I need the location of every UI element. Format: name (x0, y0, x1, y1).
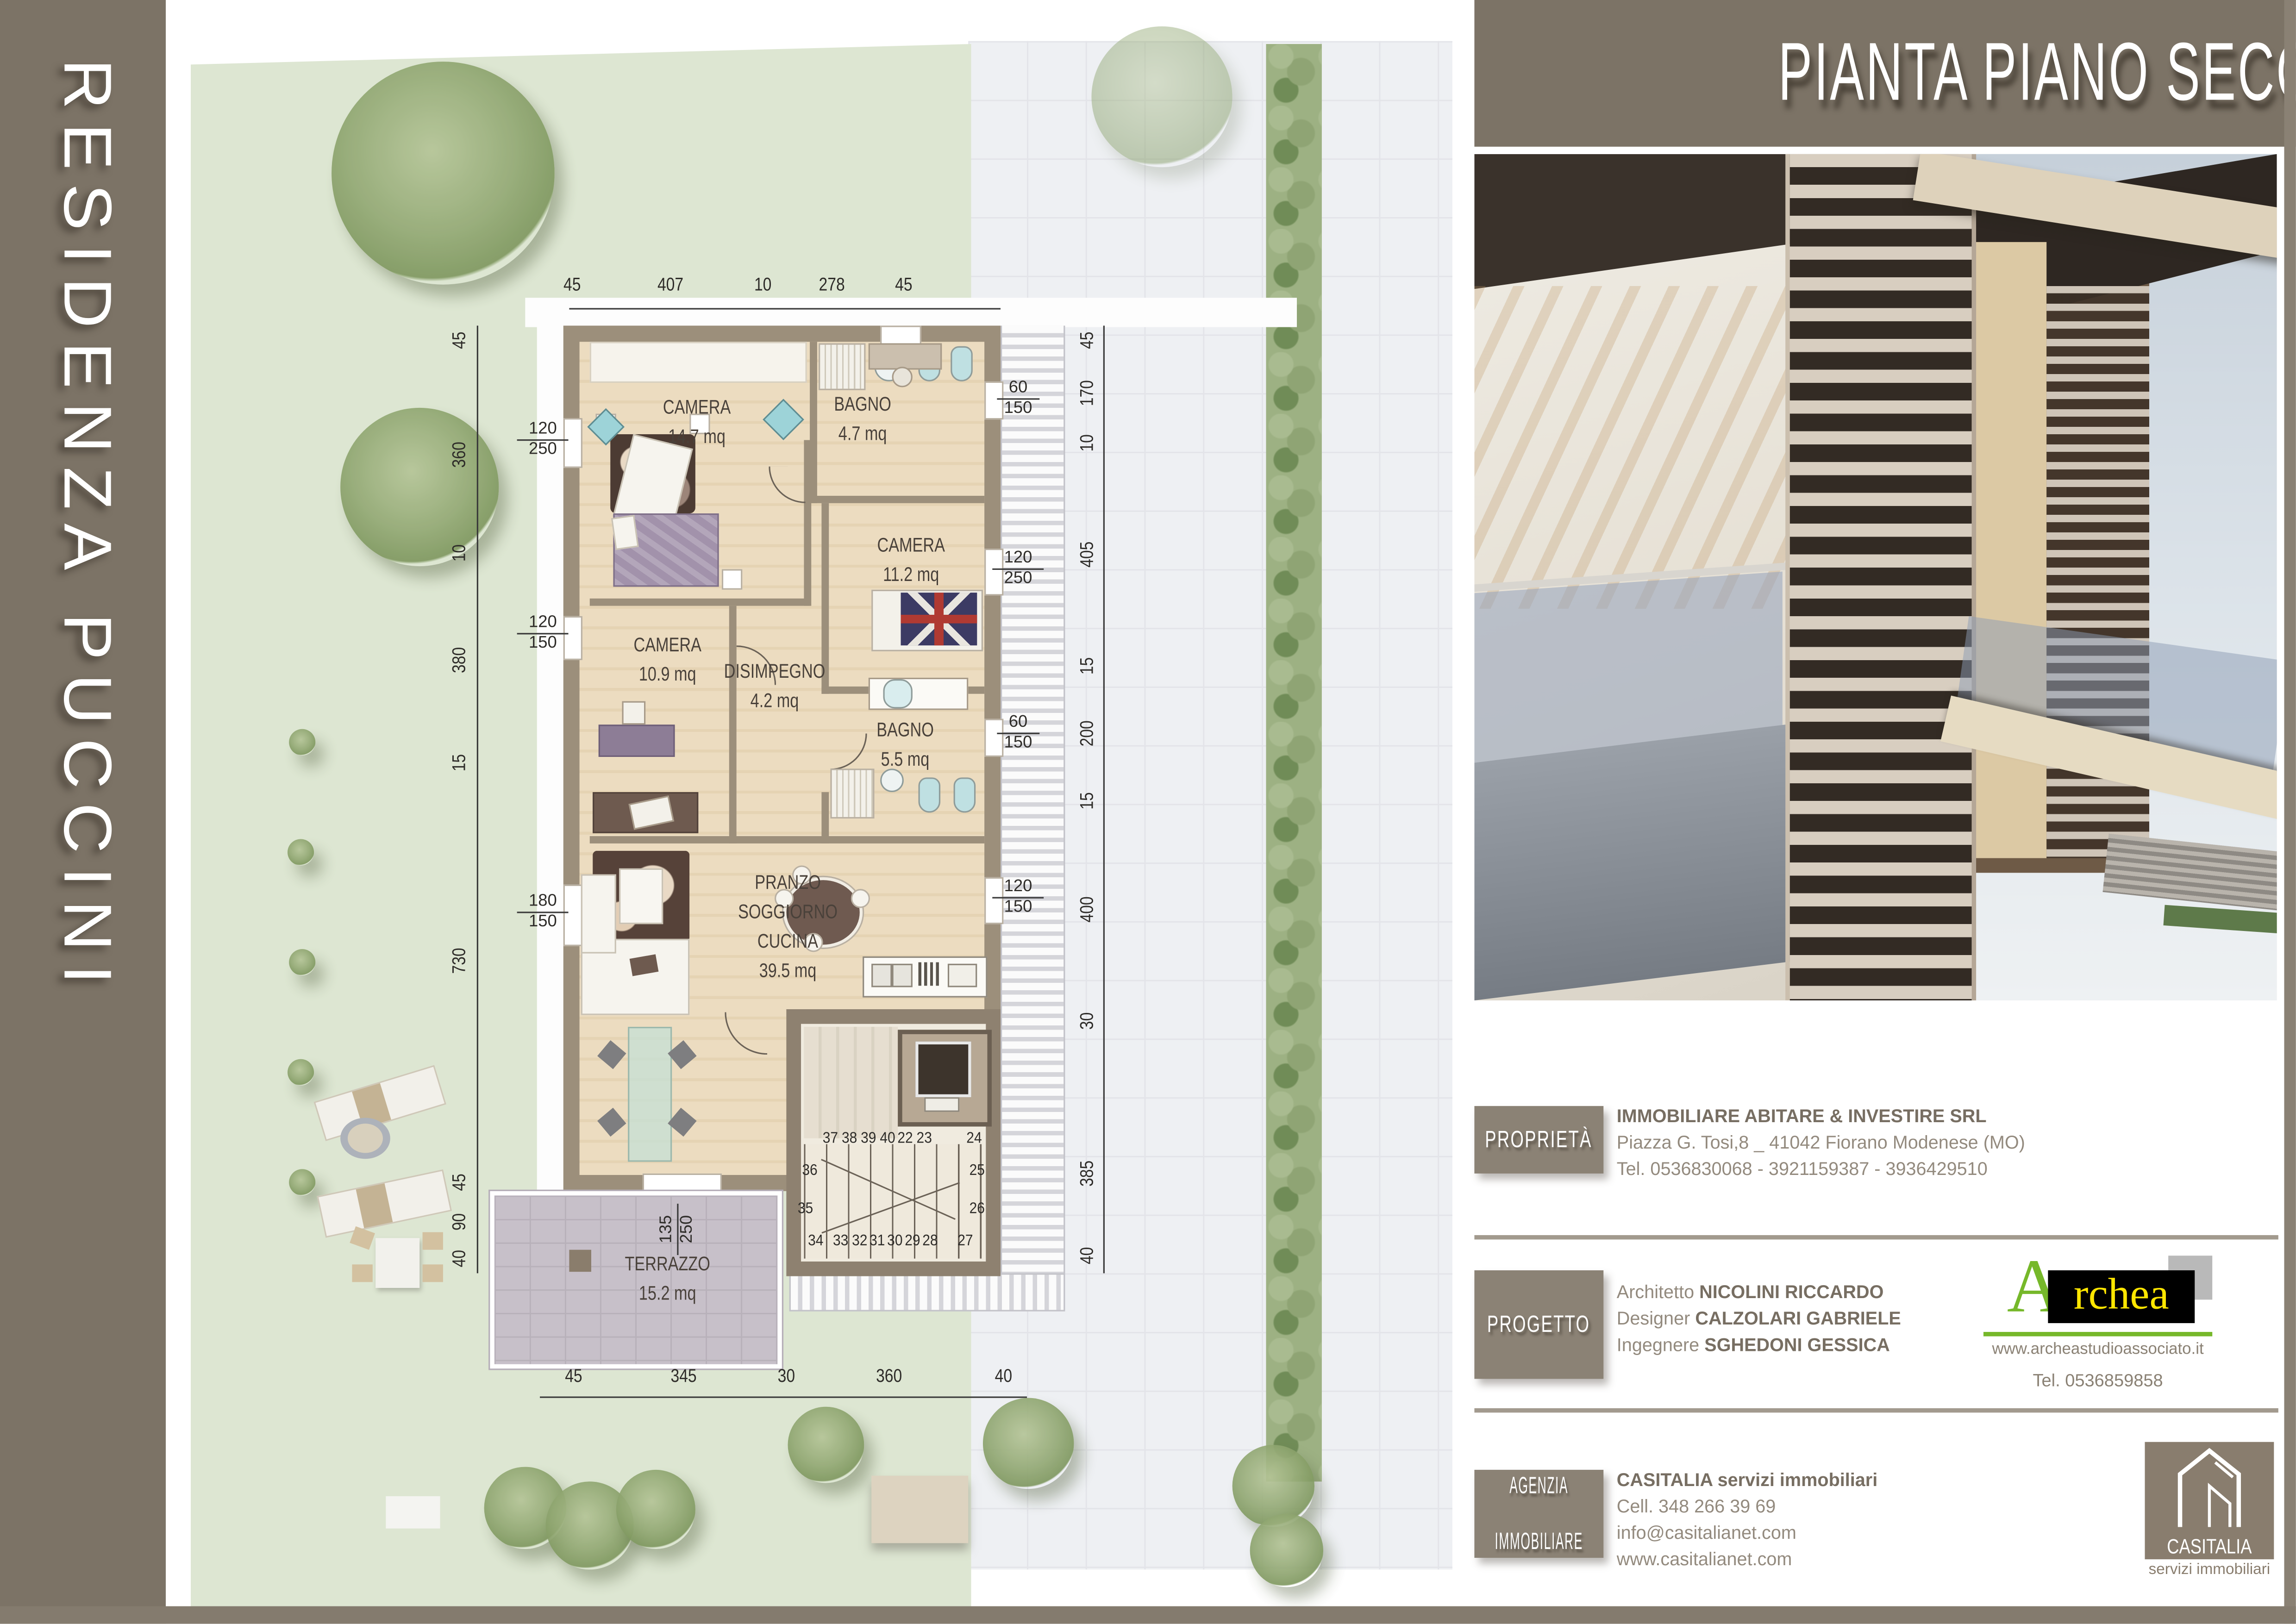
wall-cam1-bottom (590, 599, 810, 606)
progetto-label-box: PROGETTO (1474, 1270, 1603, 1379)
tree-large (332, 62, 555, 285)
glass-table (628, 1027, 672, 1162)
bush-3 (289, 949, 315, 975)
label-camera2: CAMERA10.9 mq (633, 631, 701, 689)
proprieta-company: IMMOBILIARE ABITARE & INVESTIRE SRL (1617, 1106, 1987, 1126)
dim-left-9: 40 (449, 1250, 469, 1267)
garden-pad-white (386, 1496, 440, 1529)
agenzia-text: CASITALIA servizi immobiliari Cell. 348 … (1617, 1467, 1877, 1573)
label-bagno2: BAGNO5.5 mq (876, 716, 934, 775)
chair-camera3 (892, 367, 913, 387)
archea-underline (1983, 1332, 2212, 1337)
dim-bot-1: 45 (565, 1366, 582, 1386)
stair-num: 32 (852, 1232, 867, 1250)
garden-pad-beige (871, 1476, 968, 1543)
terrace-planter (569, 1250, 591, 1272)
wall-bath1-bottom (810, 496, 984, 503)
stair-num: 34 (808, 1232, 823, 1250)
agenzia-label-box: AGENZIAIMMOBILIARE (1474, 1470, 1603, 1558)
wc-bath2 (954, 777, 976, 812)
progetto-name-3: SGHEDONI GESSICA (1704, 1335, 1890, 1355)
dim-bot-3: 30 (778, 1366, 795, 1386)
render-photo (1474, 154, 2277, 1000)
label-camera1: CAMERA14.7 mq (663, 393, 731, 452)
dimline-top (569, 308, 1001, 309)
dimline-left (477, 325, 478, 1273)
dim-right-4: 405 (1077, 542, 1097, 568)
casitalia-logo-subtitle: servizi immobiliari (2139, 1561, 2280, 1578)
wc-bath1 (951, 346, 973, 381)
opening-terrace: 135250 (658, 1204, 698, 1255)
stair-num: 39 (861, 1130, 876, 1147)
opening-left-2: 120150 (517, 614, 569, 654)
bush-4 (288, 1059, 314, 1086)
render-louver-center (1785, 154, 1976, 1000)
tree-faint (1091, 26, 1232, 167)
walkway-louvers-right (1001, 325, 1065, 1273)
label-terrazzo: TERRAZZO15.2 mq (625, 1250, 710, 1309)
elevator-cab (915, 1042, 971, 1097)
stair-landing (804, 1027, 898, 1138)
dim-left-6: 730 (449, 948, 469, 974)
wall-bedrooms-bottom (590, 836, 984, 843)
stair-num: 27 (957, 1232, 973, 1250)
opening-right-3: 60150 (997, 714, 1039, 754)
opening-left-3: 180150 (517, 893, 569, 932)
poster-page: RESIDENZA PUCCINI (0, 0, 2296, 1624)
dim-left-7: 45 (449, 1174, 469, 1191)
tree-small-2 (983, 1398, 1074, 1489)
opening-right-1: 60150 (997, 379, 1039, 419)
nightstand-camera2 (722, 569, 742, 589)
picnic-bench-3 (423, 1232, 443, 1250)
stair-num: 40 (880, 1130, 895, 1147)
kitchen-oven (948, 964, 977, 987)
bush-5 (289, 1169, 315, 1195)
chair-camera2 (622, 701, 645, 725)
garden-round-table-top (348, 1124, 383, 1153)
divider-1 (1474, 1235, 2278, 1240)
hedge-bush-1 (1232, 1445, 1314, 1527)
stair-num: 28 (922, 1232, 938, 1250)
window-top-bath (880, 325, 921, 344)
roof-eave-left (537, 325, 566, 1305)
dim-right-5: 15 (1077, 657, 1097, 675)
archea-phone: Tel. 0536859858 (1966, 1370, 2230, 1390)
desk-camera3 (869, 343, 942, 369)
kitchen-sink-1 (871, 964, 892, 987)
dim-left-2: 360 (449, 442, 469, 468)
dining-chair-2 (851, 889, 870, 908)
opening-right-2: 120250 (992, 550, 1044, 589)
pillow-camera2 (611, 515, 639, 550)
dim-left-1: 45 (449, 331, 469, 349)
dim-right-6: 200 (1077, 720, 1097, 746)
tree-medium (340, 408, 499, 566)
dim-bot-4: 360 (876, 1366, 902, 1386)
bush-cluster-3 (616, 1470, 695, 1549)
label-bagno1: BAGNO4.7 mq (834, 390, 891, 449)
residence-title: RESIDENZA PUCCINI (29, 59, 146, 1584)
stair-num: 33 (833, 1232, 848, 1250)
progetto-name-1: NICOLINI RICCARDO (1699, 1282, 1883, 1302)
render-inner-wall (1966, 242, 2046, 858)
stair-num: 29 (905, 1232, 920, 1250)
dim-top-4: 278 (819, 275, 845, 295)
proprieta-address: Piazza G. Tosi,8 _ 41042 Fiorano Modenes… (1617, 1132, 2025, 1153)
right-edge-strip (2284, 0, 2296, 1624)
shower-bath1 (819, 343, 865, 390)
dim-bot-5: 40 (995, 1366, 1012, 1386)
dim-right-2: 170 (1077, 380, 1097, 406)
dim-right-3: 10 (1077, 434, 1097, 451)
dim-right-7: 15 (1077, 792, 1097, 809)
dim-right-8: 400 (1077, 896, 1097, 922)
stair-num: 31 (870, 1232, 885, 1250)
dim-right-1: 45 (1077, 331, 1097, 349)
dim-right-9: 30 (1077, 1012, 1097, 1030)
picnic-bench-2 (352, 1264, 372, 1282)
casitalia-logo-title: CASITALIA (2157, 1534, 2263, 1558)
picnic-bench-4 (423, 1264, 443, 1282)
hedge-strip (1266, 44, 1322, 1481)
casitalia-house-icon (2145, 1442, 2274, 1533)
wall-cam1-right (804, 440, 811, 606)
stair-num: 30 (887, 1232, 902, 1250)
dim-left-8: 90 (449, 1213, 469, 1230)
roof-eave-top (525, 298, 1297, 327)
dim-top-3: 10 (754, 275, 771, 295)
page-title: PIANTA PIANO SECONDO (1778, 24, 2274, 126)
kitchen-sink-2 (892, 964, 913, 987)
progetto-name-2: CALZOLARI GABRIELE (1695, 1308, 1901, 1329)
agenzia-company: CASITALIA servizi immobiliari (1617, 1470, 1877, 1490)
dim-left-5: 15 (449, 754, 469, 771)
dimline-right (1103, 325, 1105, 1273)
walkway-louvers-bottom (789, 1273, 1065, 1311)
bottom-bar (0, 1606, 2296, 1624)
agenzia-cell: Cell. 348 266 39 69 (1617, 1496, 1776, 1517)
label-camera3: CAMERA11.2 mq (877, 531, 945, 590)
washer-bath2 (830, 768, 874, 818)
progetto-role-1: Architetto (1617, 1282, 1694, 1302)
progetto-role-2: Designer (1617, 1308, 1690, 1329)
bidet-bath2 (919, 777, 941, 812)
bush-2 (288, 839, 314, 865)
label-soggiorno: PRANZOSOGGIORNOCUCINA39.5 mq (738, 868, 838, 986)
stair-num: 22 (897, 1130, 913, 1147)
coffee-table (619, 868, 663, 924)
dim-top-1: 45 (563, 275, 581, 295)
label-disimpegno: DISIMPEGNO4.2 mq (724, 657, 826, 716)
agenzia-email: info@casitalianet.com (1617, 1523, 1796, 1543)
progetto-text: Architetto NICOLINI RICCARDO Designer CA… (1617, 1279, 1901, 1358)
kitchen-hob (919, 962, 939, 986)
stair-num: 37 (823, 1130, 838, 1147)
hedge-bush-2 (1250, 1514, 1323, 1587)
elevator-panel (924, 1097, 959, 1112)
proprieta-label-box: PROPRIETÀ (1474, 1106, 1603, 1174)
stair-num: 35 (798, 1200, 813, 1218)
archea-website: www.archeastudioassociato.it (1966, 1341, 2230, 1358)
render-shadow-stripes (1474, 286, 1789, 609)
sofa-chaise (581, 874, 616, 953)
dim-right-11: 40 (1077, 1247, 1097, 1264)
stair-num: 36 (802, 1162, 817, 1180)
wall-bath2-left (821, 792, 829, 843)
dim-right-10: 385 (1077, 1161, 1097, 1187)
stair-num: 25 (970, 1162, 985, 1180)
dim-top-2: 407 (657, 275, 683, 295)
proprieta-text: IMMOBILIARE ABITARE & INVESTIRE SRL Piaz… (1617, 1103, 2025, 1182)
closet-band (590, 342, 807, 383)
uk-flag-rug (901, 593, 977, 645)
stair-num: 24 (966, 1130, 982, 1147)
dim-bot-2: 345 (670, 1366, 696, 1386)
dim-left-3: 10 (449, 544, 469, 562)
stair-num: 23 (917, 1130, 932, 1147)
opening-left-1: 120250 (517, 420, 569, 460)
divider-2 (1474, 1408, 2278, 1413)
archea-logo-box: rchea (2048, 1270, 2195, 1323)
progetto-role-3: Ingegnere (1617, 1335, 1699, 1355)
dimline-bottom (540, 1397, 1027, 1398)
desk-camera2 (599, 725, 675, 757)
dim-left-4: 380 (449, 647, 469, 673)
bush-1 (289, 729, 315, 756)
sink-bath2 (883, 679, 912, 708)
picnic-table (375, 1238, 419, 1288)
stair-num: 38 (842, 1130, 857, 1147)
stair-num: 26 (970, 1200, 985, 1218)
proprieta-phone: Tel. 0536830068 - 3921159387 - 393642951… (1617, 1159, 1988, 1179)
opening-right-4: 120150 (992, 878, 1044, 918)
wall-cam2-right (729, 606, 737, 843)
render-floor (1474, 724, 1794, 1000)
agenzia-website: www.casitalianet.com (1617, 1549, 1792, 1569)
tree-small-1 (788, 1407, 864, 1483)
dim-top-5: 45 (895, 275, 912, 295)
